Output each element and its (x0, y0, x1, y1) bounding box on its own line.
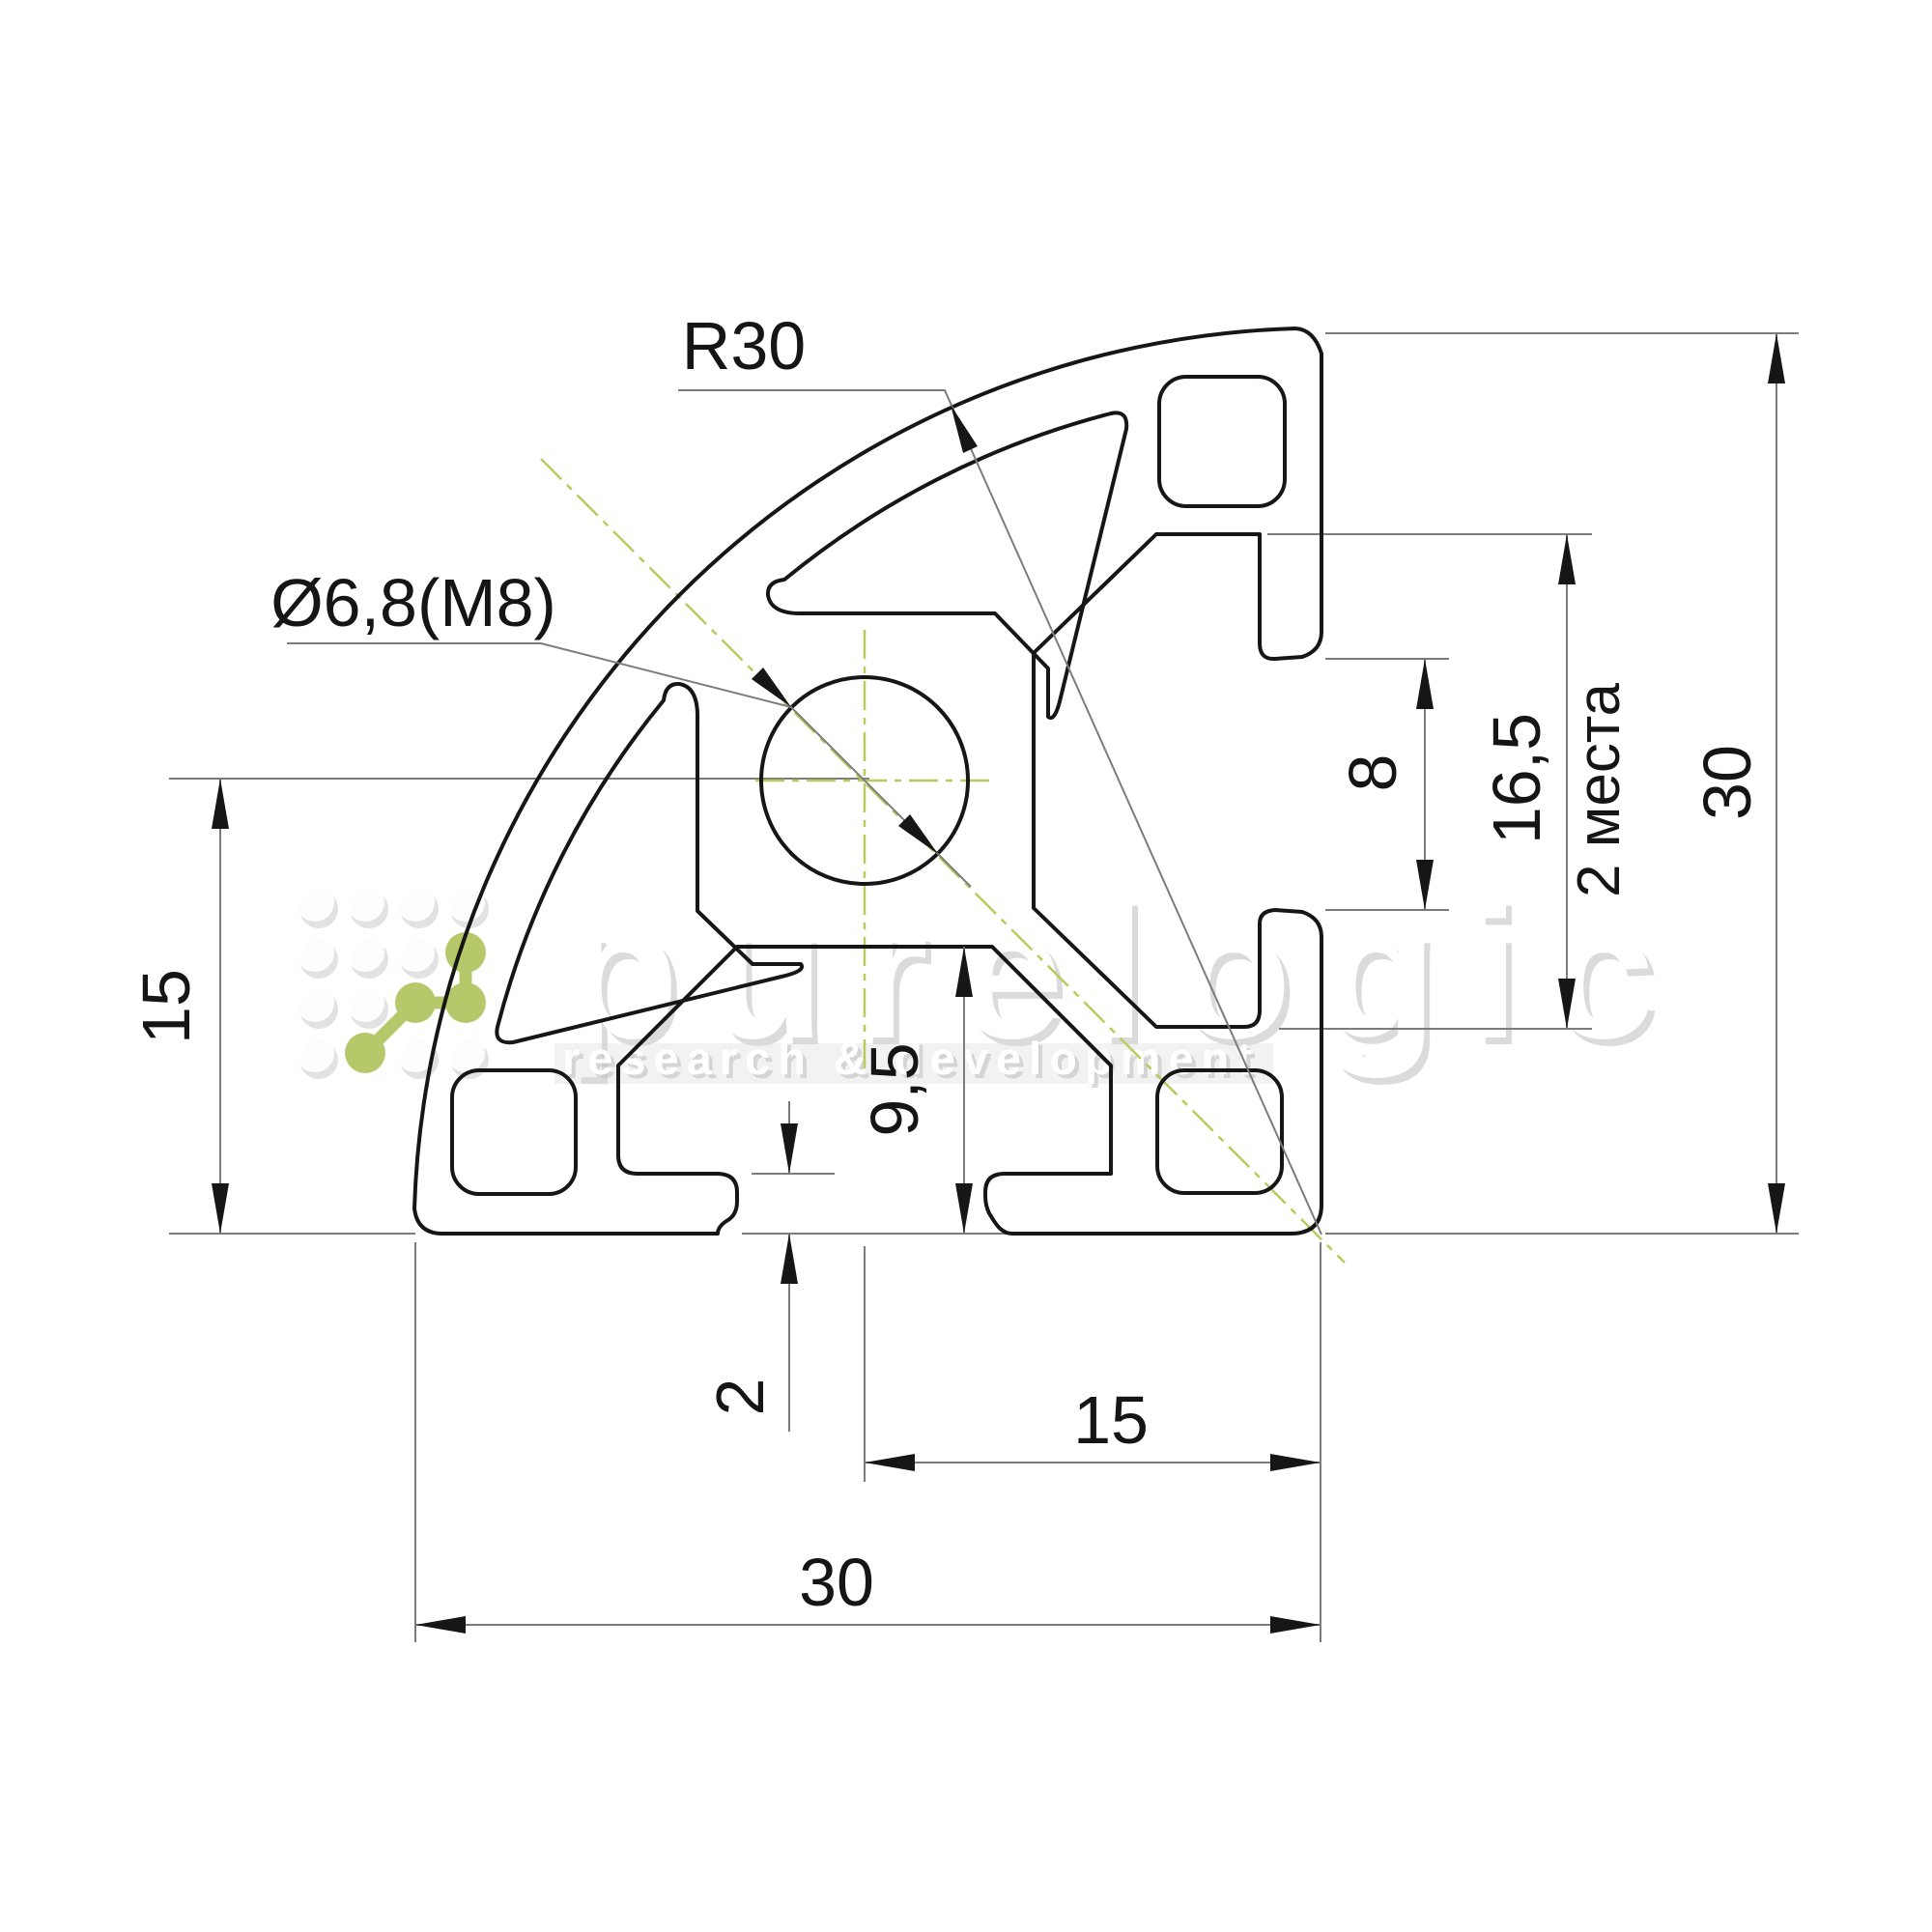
centerlines (541, 459, 1345, 1263)
screw-channel-bottom-right (1157, 1070, 1282, 1193)
dim-label-left-height: 15 (128, 969, 204, 1044)
technical-drawing-page: purelogic purelogic research & developme… (0, 0, 1932, 1932)
dim-label-slot-depth: 9,5 (857, 1042, 932, 1136)
dim-label-groove-span-note: 2 места (1566, 682, 1633, 897)
diagonal-centerline (541, 459, 1345, 1263)
watermark: purelogic purelogic research & developme… (296, 865, 1690, 1088)
screw-channel-bottom-left (452, 1070, 576, 1194)
watermark-logo-dots (296, 883, 489, 1079)
dim-overall-width-30: 30 (415, 1545, 1321, 1634)
dim-label-overall-height: 30 (1690, 745, 1765, 820)
dim-label-radius: R30 (682, 308, 806, 384)
dim-label-groove-span: 16,5 (1479, 713, 1554, 844)
dim-lip-thickness-2: 2 (702, 1101, 798, 1432)
dim-half-width-15: 15 (865, 1382, 1321, 1471)
dim-label-overall-width: 30 (799, 1545, 874, 1620)
arc-slot-upper (768, 412, 1126, 718)
dim-radius-r30: R30 (678, 308, 1321, 1235)
dim-left-height-15: 15 (128, 779, 229, 1234)
profile-drawing: purelogic purelogic research & developme… (0, 0, 1932, 1932)
screw-channel-top-right (1159, 377, 1285, 506)
dim-label-half-width: 15 (1073, 1382, 1149, 1458)
dim-label-center-hole: Ø6,8(M8) (270, 565, 556, 640)
dim-label-lip-thickness: 2 (702, 1378, 778, 1416)
dim-overall-height-30: 30 (1690, 333, 1785, 1234)
dim-label-slot-opening: 8 (1335, 754, 1410, 792)
